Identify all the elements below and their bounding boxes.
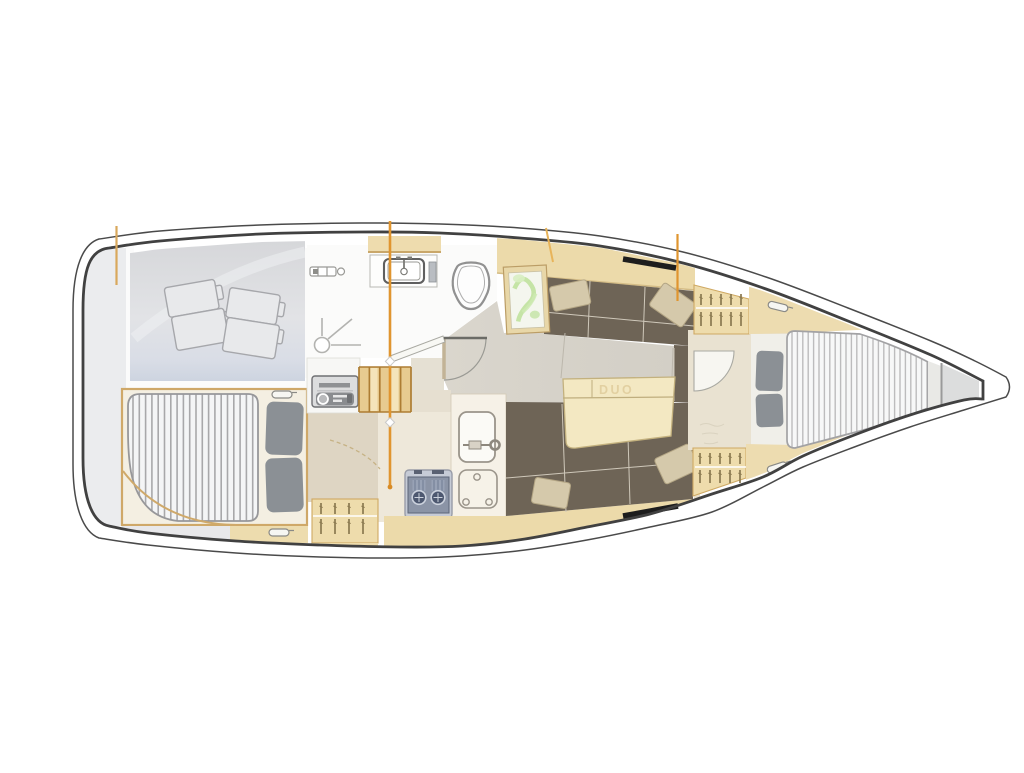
svg-text:DUO: DUO xyxy=(599,383,634,397)
